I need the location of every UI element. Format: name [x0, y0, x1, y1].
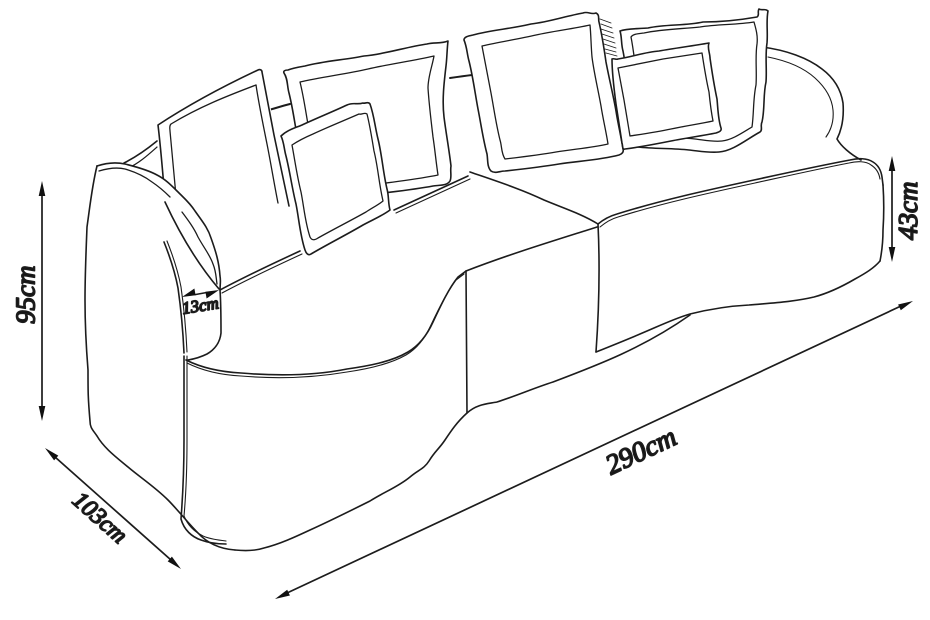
svg-text:290cm: 290cm — [601, 421, 682, 481]
svg-text:43cm: 43cm — [893, 182, 923, 240]
svg-text:95cm: 95cm — [11, 266, 41, 324]
